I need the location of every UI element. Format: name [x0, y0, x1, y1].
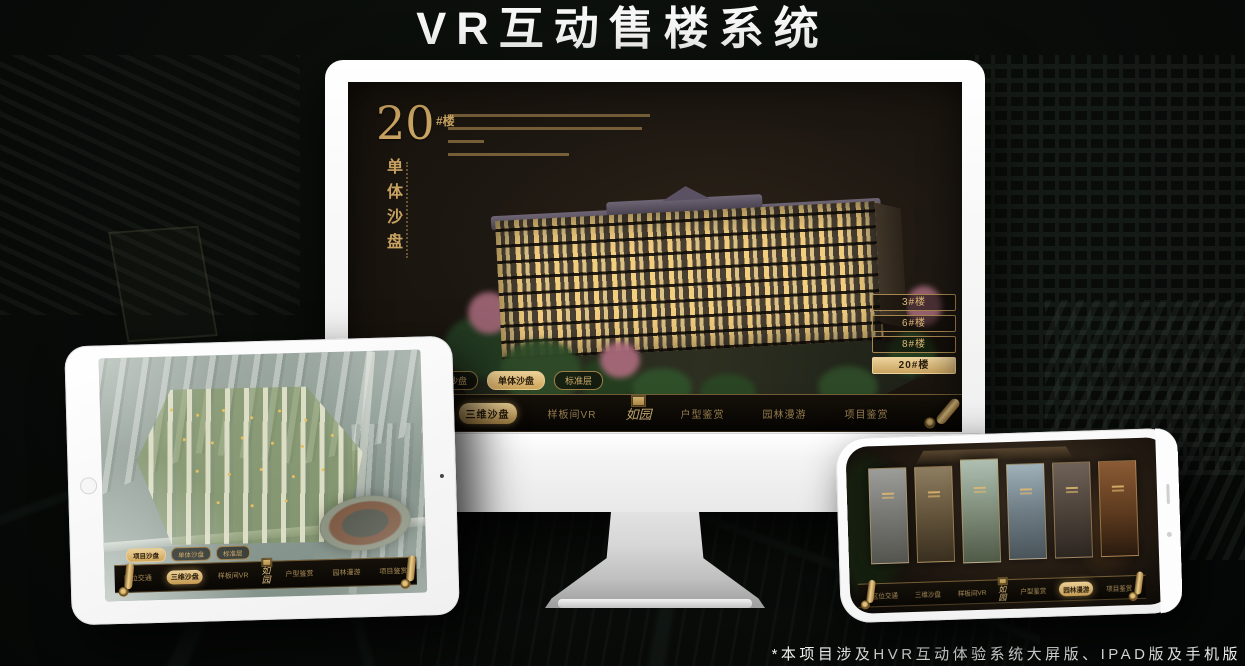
background-plaque [108, 226, 218, 343]
tablet-home-button[interactable] [80, 477, 97, 494]
floor-button-3[interactable]: 8#楼 [872, 336, 956, 353]
scroll-bar [935, 397, 962, 426]
phone-speaker-icon [1166, 483, 1170, 503]
floor-button-2[interactable]: 6#楼 [872, 315, 956, 332]
monitor-stand [545, 512, 765, 608]
block-number: 20 [376, 96, 435, 150]
floor-button-label: 6#楼 [902, 318, 926, 329]
blossom-tree [600, 342, 640, 378]
brand-logo-text: 如园 [998, 586, 1008, 602]
desktop-nav-item-label: 项目鉴赏 [844, 410, 888, 421]
desktop-subtab-label: 标准层 [565, 376, 592, 386]
phone-nav-item-2[interactable]: 三维沙盘 [911, 586, 945, 601]
phone-notch-area [1155, 428, 1183, 614]
desktop-nav-item-2[interactable]: 三维沙盘 [459, 403, 517, 424]
floor-button-4[interactable]: 20#楼 [872, 357, 956, 374]
gallery-panel-6[interactable] [1098, 460, 1139, 557]
brand-logo: 如园 [625, 395, 651, 422]
desktop-nav-item-label: 户型鉴赏 [680, 410, 724, 421]
poster-canvas: VR互动售楼系统 20 #楼 单体沙盘 [0, 0, 1245, 666]
subtitle-divider [406, 162, 408, 258]
floor-button-label: 3#楼 [902, 297, 926, 308]
brand-logo-text: 如园 [625, 409, 651, 422]
gallery-panel-3[interactable] [960, 458, 1001, 563]
phone-nav-item-label: 三维沙盘 [915, 591, 941, 599]
tablet-nav-item-label: 户型鉴赏 [285, 571, 313, 579]
tablet-nav-item-1[interactable]: 户型鉴赏 [281, 566, 317, 581]
scroll-end [400, 578, 411, 589]
desktop-nav-item-label: 三维沙盘 [466, 410, 510, 421]
background-map-blocks [0, 55, 300, 315]
desktop-nav-item-label: 样板间VR [548, 410, 597, 421]
scroll-handle-right-icon[interactable] [397, 554, 416, 589]
page-title: VR互动售楼系统 [0, 0, 1245, 58]
desktop-nav-item-label: 园林漫游 [762, 410, 806, 421]
building-facade-windows [495, 201, 884, 360]
block-subtitle: 单体沙盘 [380, 158, 404, 258]
floor-button-label: 20#楼 [899, 360, 930, 371]
tablet-subtab-1[interactable]: 项目沙盘 [126, 548, 166, 563]
tablet-subtab-2[interactable]: 单体沙盘 [171, 546, 211, 561]
roof-gable [661, 185, 710, 201]
footnote-text: *本项目涉及HVR互动体验系统大屏版、IPAD版及手机版 [772, 643, 1241, 664]
nav-right-group: 户型鉴赏园林漫游项目鉴赏 [1016, 580, 1136, 598]
tablet-screen: 项目沙盘单体沙盘标准层 区位交通三维沙盘样板间VR 如园 户型鉴赏园林漫游项目鉴… [99, 350, 428, 602]
tablet-bottom-nav: 区位交通三维沙盘样板间VR 如园 户型鉴赏园林漫游项目鉴赏 [114, 557, 417, 593]
nav-left-group: 区位交通三维沙盘样板间VR [120, 568, 253, 586]
tablet-device: 项目沙盘单体沙盘标准层 区位交通三维沙盘样板间VR 如园 户型鉴赏园林漫游项目鉴… [64, 336, 460, 626]
phone-camera-icon [1167, 531, 1172, 536]
desktop-nav-item-3[interactable]: 项目鉴赏 [837, 403, 895, 424]
tablet-subtab-label: 标准层 [223, 551, 243, 559]
floor-button-label: 8#楼 [902, 339, 926, 350]
desktop-nav-item-3[interactable]: 样板间VR [541, 403, 604, 424]
brand-logo: 如园 [261, 558, 273, 586]
tablet-subtab-group: 项目沙盘单体沙盘标准层 [126, 545, 250, 562]
building-model[interactable] [494, 188, 883, 360]
tablet-nav-item-label: 三维沙盘 [171, 574, 199, 582]
phone-nav-item-label: 户型鉴赏 [1020, 588, 1046, 596]
floor-button-1[interactable]: 3#楼 [872, 294, 956, 311]
building-number-markers [170, 408, 173, 411]
tablet-nav-item-2[interactable]: 园林漫游 [328, 565, 364, 580]
phone-nav-item-3[interactable]: 样板间VR [954, 585, 991, 600]
desktop-subtab-2[interactable]: 单体沙盘 [487, 371, 545, 390]
desktop-nav-item-1[interactable]: 户型鉴赏 [673, 403, 731, 424]
tablet-subtab-3[interactable]: 标准层 [216, 545, 250, 560]
description-text-lines [448, 114, 650, 166]
brand-logo: 如园 [998, 577, 1009, 602]
desktop-subtab-label: 单体沙盘 [498, 376, 534, 386]
floor-button-group: 3#楼6#楼8#楼20#楼 [872, 294, 956, 374]
brand-logo-text: 如园 [261, 568, 272, 586]
tablet-subtab-label: 单体沙盘 [178, 552, 204, 560]
desktop-subtab-3[interactable]: 标准层 [554, 371, 603, 390]
nav-right-group: 户型鉴赏园林漫游项目鉴赏 [673, 403, 895, 424]
seal-icon [631, 395, 646, 407]
desktop-nav-item-2[interactable]: 园林漫游 [755, 403, 813, 424]
phone-nav-item-label: 区位交通 [872, 593, 898, 601]
phone-nav-item-label: 样板间VR [958, 590, 987, 598]
gallery-panel-1[interactable] [868, 467, 909, 564]
phone-nav-item-label: 园林漫游 [1063, 587, 1089, 595]
nav-right-group: 户型鉴赏园林漫游项目鉴赏 [281, 564, 411, 582]
tablet-nav-item-label: 样板间VR [218, 572, 249, 580]
seal-icon [261, 558, 272, 567]
tablet-nav-item-2[interactable]: 三维沙盘 [167, 570, 203, 585]
scroll-end [860, 600, 870, 610]
tablet-nav-item-3[interactable]: 样板间VR [214, 568, 253, 583]
tablet-subtab-label: 项目沙盘 [133, 553, 159, 561]
phone-screen: 区位交通三维沙盘样板间VR 如园 户型鉴赏园林漫游项目鉴赏 [845, 437, 1172, 614]
phone-nav-item-2[interactable]: 园林漫游 [1059, 581, 1093, 596]
background-map-blocks [975, 55, 1245, 475]
scroll-handle-left-icon[interactable] [115, 562, 134, 597]
phone-device: 区位交通三维沙盘样板间VR 如园 户型鉴赏园林漫游项目鉴赏 [835, 428, 1183, 624]
gallery-panel-2[interactable] [914, 466, 955, 563]
tablet-nav-item-label: 园林漫游 [332, 569, 360, 577]
seal-icon [998, 577, 1008, 585]
nav-left-group: 区位交通三维沙盘样板间VR [868, 585, 991, 603]
phone-nav-item-1[interactable]: 户型鉴赏 [1016, 583, 1050, 598]
gallery-panel-4[interactable] [1006, 463, 1047, 560]
tablet-camera-icon [440, 473, 444, 477]
gallery-panel-5[interactable] [1052, 461, 1093, 558]
scroll-end [118, 586, 129, 597]
scroll-end [1128, 591, 1138, 601]
